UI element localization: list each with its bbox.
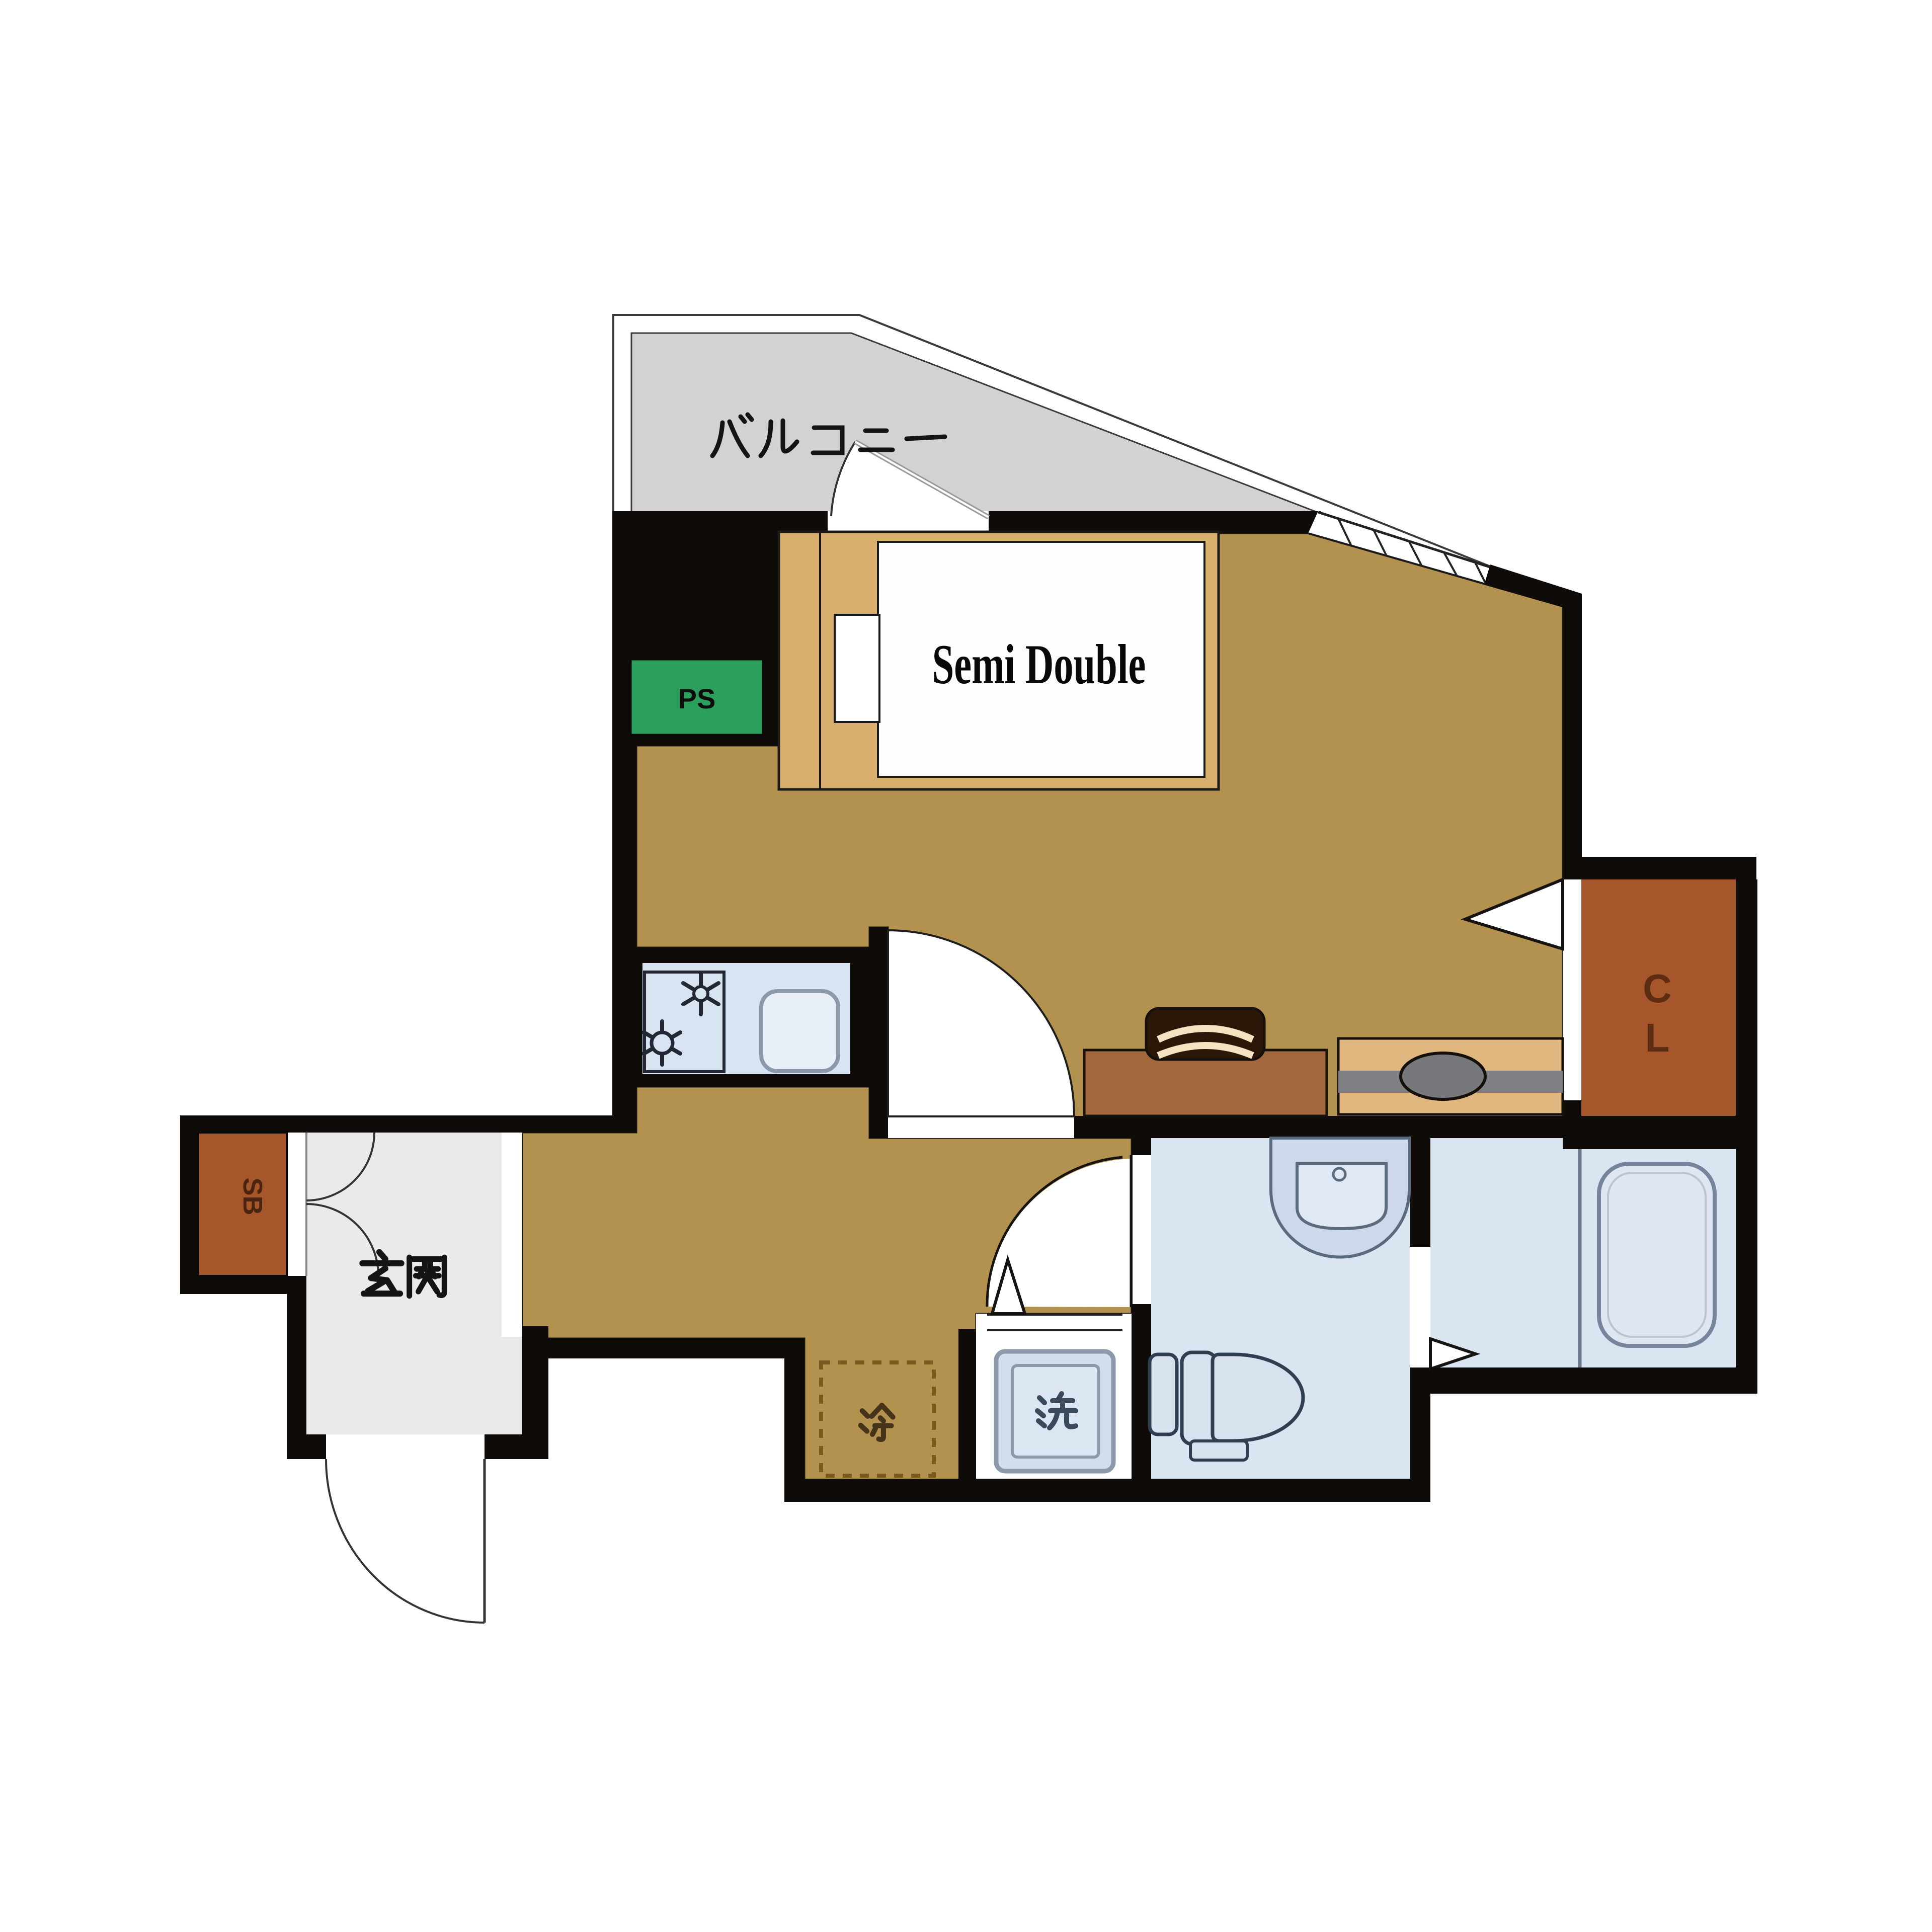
svg-text:SB: SB	[237, 1177, 268, 1215]
svg-text:Semi Double: Semi Double	[932, 633, 1146, 695]
svg-text:C: C	[1643, 966, 1672, 1011]
svg-text:L: L	[1645, 1015, 1670, 1060]
svg-text:PS: PS	[678, 683, 716, 714]
